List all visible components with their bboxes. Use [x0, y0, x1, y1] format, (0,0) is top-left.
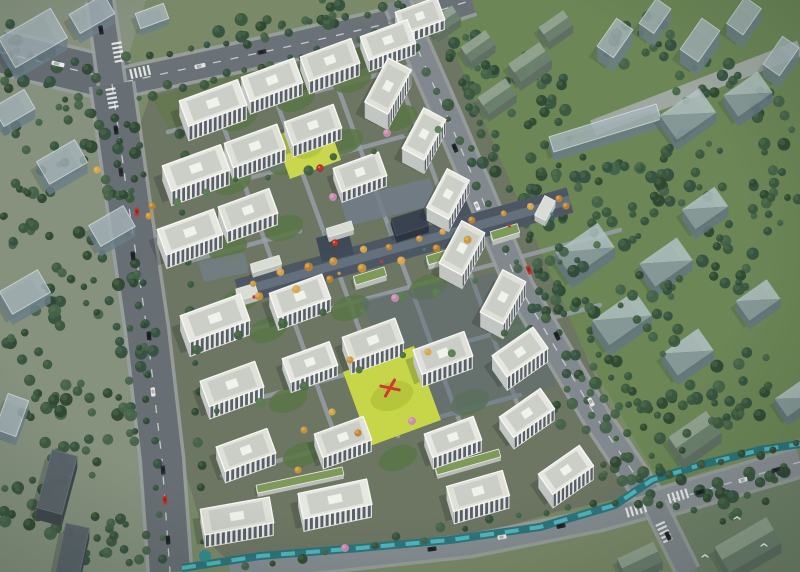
- vignette-overlay: [0, 0, 800, 572]
- aerial-render-canvas: [0, 0, 800, 572]
- aerial-render-viewport: [0, 0, 800, 572]
